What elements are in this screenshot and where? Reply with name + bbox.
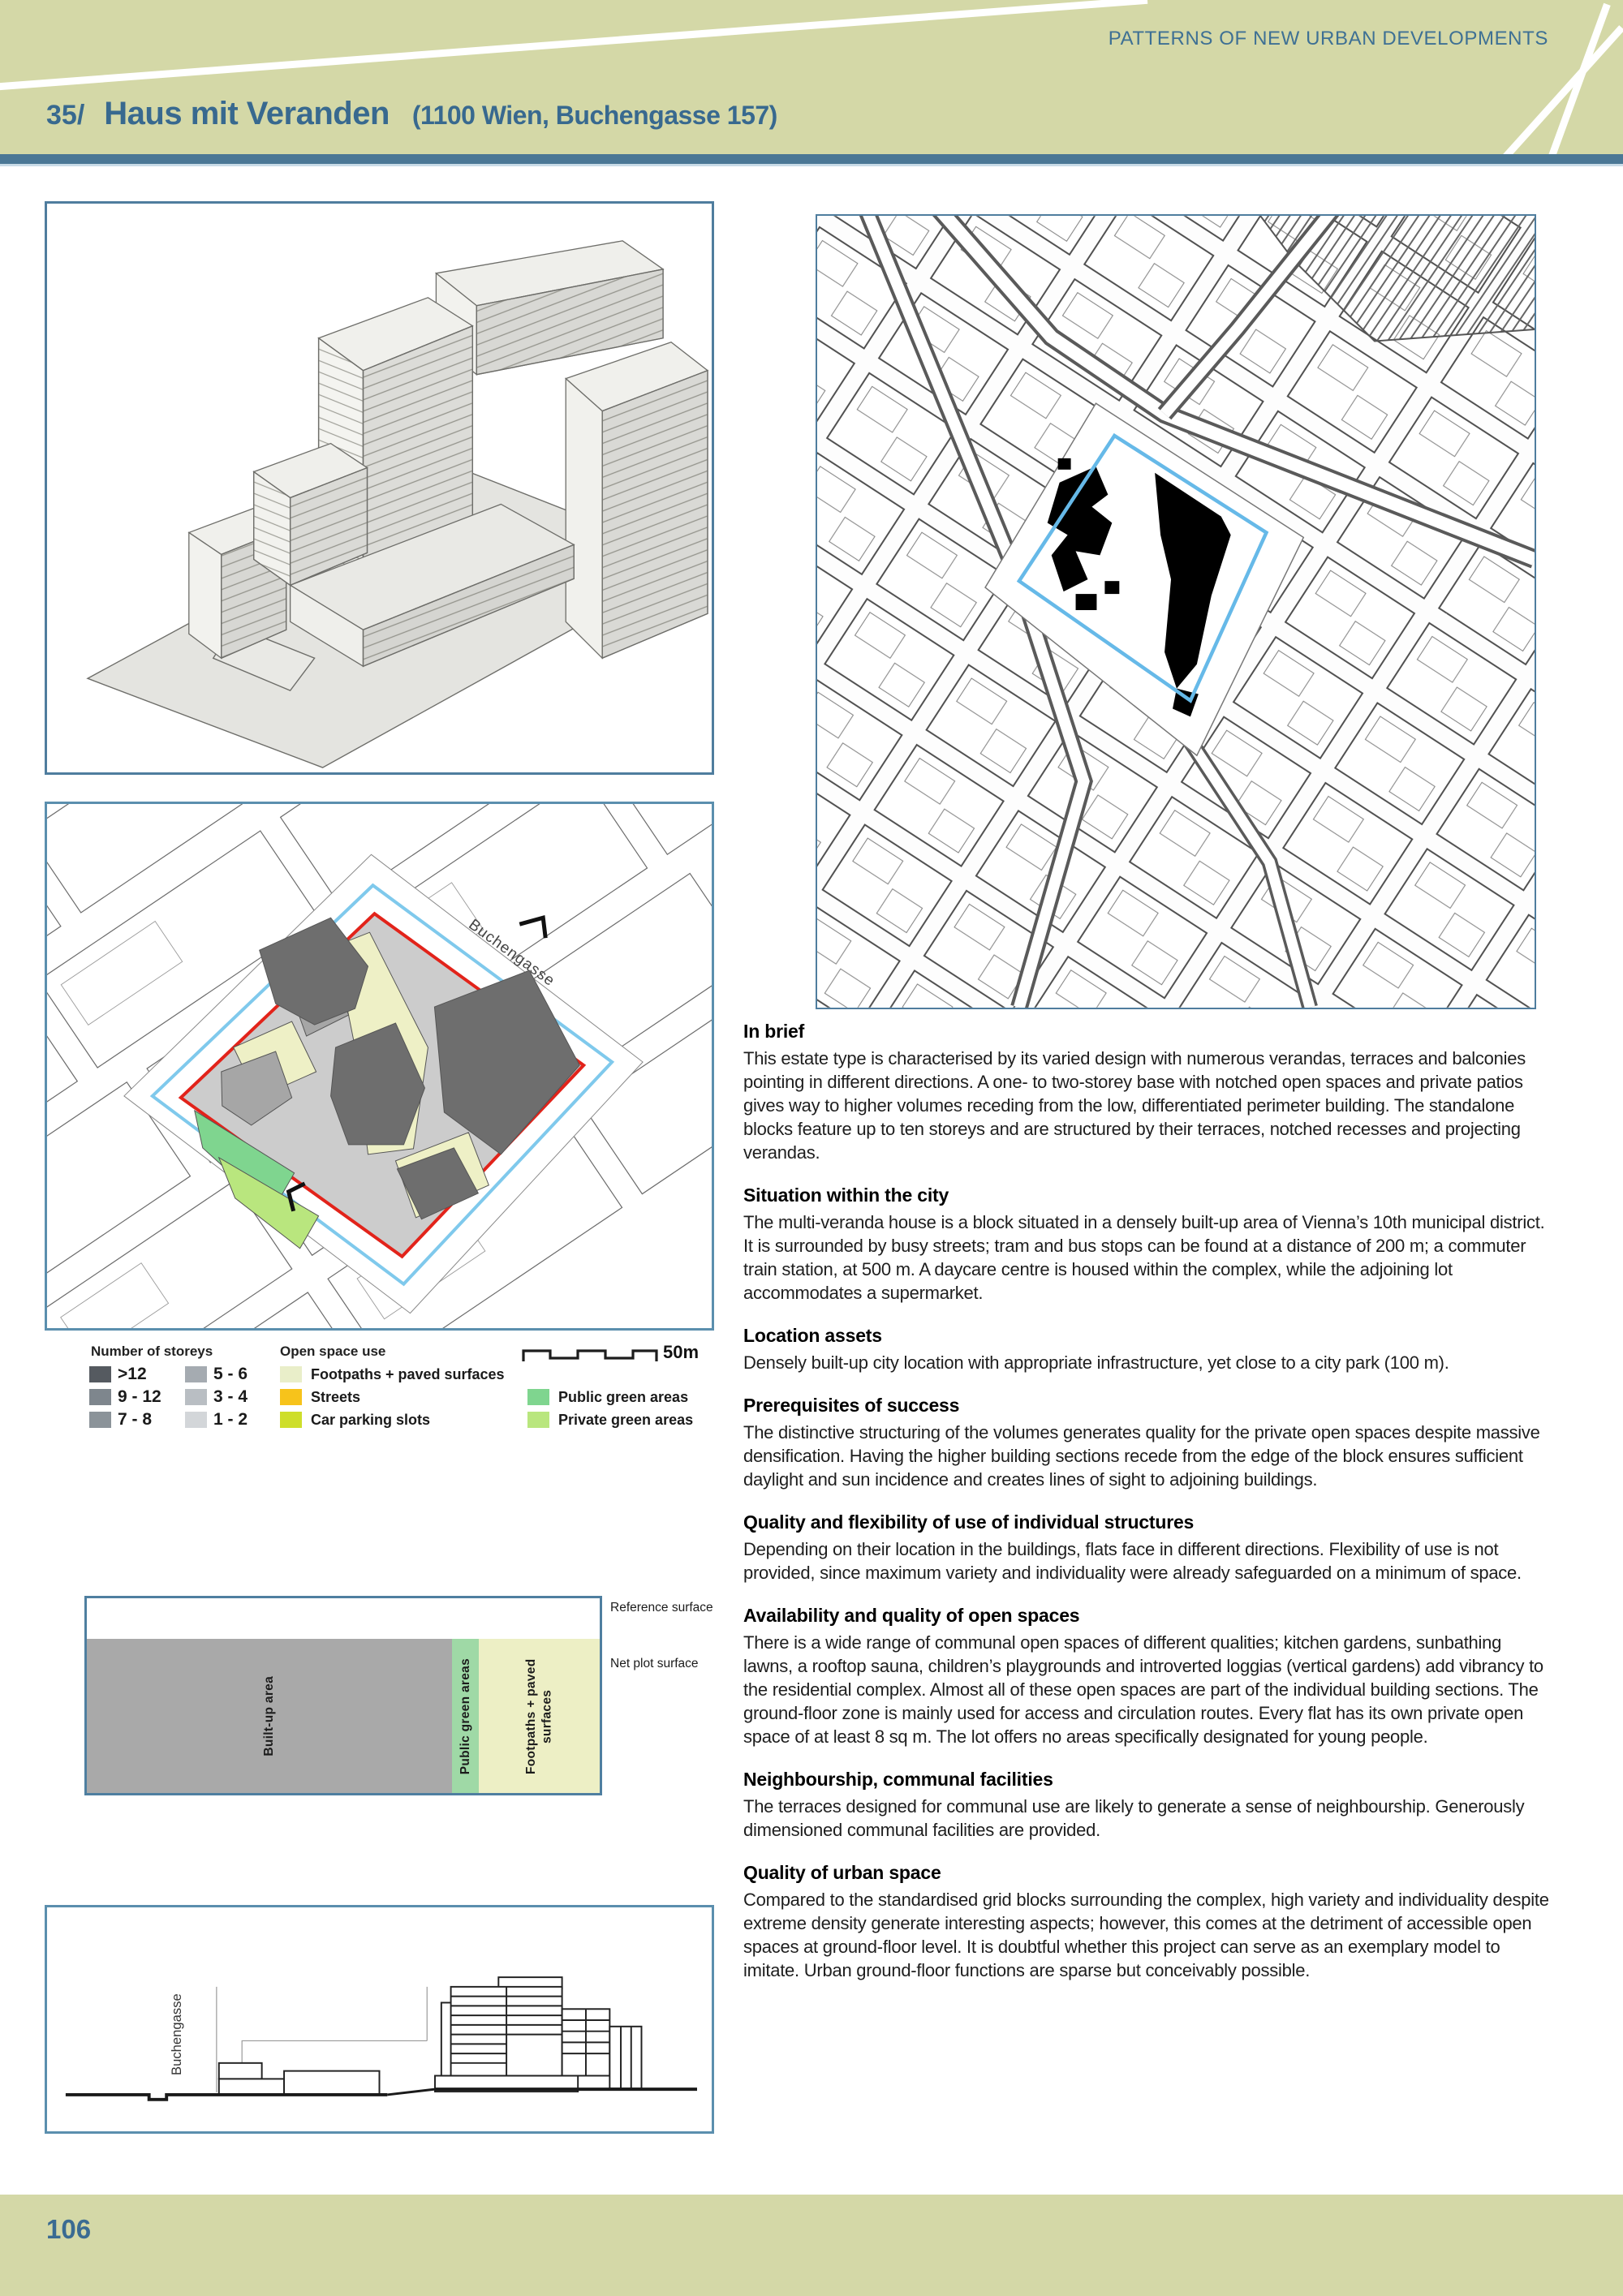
title-subtitle: (1100 Wien, Buchengasse 157) xyxy=(412,101,777,131)
section-body: The multi-veranda house is a block situa… xyxy=(743,1210,1553,1305)
legend-label: 9 - 12 xyxy=(118,1389,161,1405)
section-body: Depending on their location in the build… xyxy=(743,1537,1553,1584)
left-low-building xyxy=(219,2063,380,2095)
legend-label: Streets xyxy=(311,1389,360,1405)
section-body: There is a wide range of communal open s… xyxy=(743,1631,1553,1748)
book-page: PATTERNS OF NEW URBAN DEVELOPMENTS 35/ H… xyxy=(0,0,1623,2296)
item-number: 35/ xyxy=(46,100,84,131)
legend-swatch xyxy=(185,1412,207,1428)
legend-label: Private green areas xyxy=(558,1412,693,1428)
axonometric-figure xyxy=(45,201,714,775)
section: Situation within the city The multi-vera… xyxy=(743,1185,1553,1305)
net-plot-surface-row: Built-up area Public green areas Footpat… xyxy=(87,1639,600,1793)
section: Location assets Densely built-up city lo… xyxy=(743,1325,1553,1374)
article-text-column: In brief This estate type is characteris… xyxy=(743,1021,1553,2002)
section-body: This estate type is characterised by its… xyxy=(743,1047,1553,1164)
section: In brief This estate type is characteris… xyxy=(743,1021,1553,1164)
section: Quality and flexibility of use of indivi… xyxy=(743,1511,1553,1584)
chapter-eyebrow: PATTERNS OF NEW URBAN DEVELOPMENTS xyxy=(1109,28,1548,50)
chart-row-label: Reference surface xyxy=(610,1600,732,1615)
street-label: Buchengasse xyxy=(169,1993,184,2075)
segment-label: Built-up area xyxy=(261,1676,277,1756)
reference-surface-row xyxy=(87,1598,600,1639)
building-massing xyxy=(189,241,708,666)
legend-label: Public green areas xyxy=(558,1389,688,1405)
footer-band: 106 xyxy=(0,2195,1623,2296)
decorative-stripe-icon xyxy=(0,0,1147,91)
city-map-drawing xyxy=(817,216,1535,1008)
section: Availability and quality of open spaces … xyxy=(743,1605,1553,1748)
section-heading: In brief xyxy=(743,1021,1553,1043)
chart-segment-footpaths: Footpaths + paved surfaces xyxy=(479,1639,600,1793)
section-body: The distinctive structuring of the volum… xyxy=(743,1421,1553,1491)
legend-swatch xyxy=(89,1389,111,1405)
legend-label: 5 - 6 xyxy=(213,1366,248,1382)
surface-share-chart: Built-up area Public green areas Footpat… xyxy=(84,1596,602,1795)
header-rule xyxy=(0,154,1623,166)
page-number: 106 xyxy=(46,2214,91,2245)
site-plan-drawing: Buchengasse xyxy=(47,804,712,1328)
legend-label: 1 - 2 xyxy=(213,1412,248,1428)
section-body: Densely built-up city location with appr… xyxy=(743,1351,1553,1374)
section-heading: Availability and quality of open spaces xyxy=(743,1605,1553,1627)
legend-label: >12 xyxy=(118,1366,147,1382)
site-plan-figure: Buchengasse xyxy=(45,802,714,1331)
legend-swatch xyxy=(89,1412,111,1428)
legend-label: Car parking slots xyxy=(311,1412,430,1428)
section: Quality of urban space Compared to the s… xyxy=(743,1862,1553,1982)
section-heading: Prerequisites of success xyxy=(743,1395,1553,1417)
scale-label: 50m xyxy=(663,1342,699,1363)
axonometric-drawing xyxy=(47,204,712,772)
legend-label: Footpaths + paved surfaces xyxy=(311,1366,505,1382)
legend-swatch xyxy=(527,1389,549,1405)
legend-swatch xyxy=(527,1412,549,1428)
elevation-figure: Buchengasse xyxy=(45,1905,714,2134)
legend-swatch xyxy=(89,1366,111,1382)
ground-line xyxy=(66,2089,697,2100)
title-text: Haus mit Veranden xyxy=(104,96,390,132)
section-heading: Situation within the city xyxy=(743,1185,1553,1206)
city-map-figure xyxy=(816,214,1536,1009)
right-tall-building xyxy=(435,1977,641,2092)
section-heading: Quality and flexibility of use of indivi… xyxy=(743,1511,1553,1533)
legend-label: 7 - 8 xyxy=(118,1412,152,1428)
page-title: 35/ Haus mit Veranden (1100 Wien, Buchen… xyxy=(46,96,777,132)
map-legend: Number of storeys >12 9 - 12 7 - 8 5 - 6… xyxy=(45,1340,726,1455)
segment-label: Public green areas xyxy=(458,1658,473,1774)
legend-title: Number of storeys xyxy=(91,1344,213,1360)
section-heading: Location assets xyxy=(743,1325,1553,1347)
chart-row-label: Net plot surface xyxy=(610,1656,732,1671)
legend-swatch xyxy=(280,1412,302,1428)
section-body: Compared to the standardised grid blocks… xyxy=(743,1888,1553,1982)
chart-segment-built-up: Built-up area xyxy=(87,1639,452,1793)
scale-bar xyxy=(521,1345,659,1363)
section: Neighbourship, communal facilities The t… xyxy=(743,1769,1553,1842)
legend-title: Open space use xyxy=(280,1344,385,1360)
legend-swatch xyxy=(185,1366,207,1382)
section: Prerequisites of success The distinctive… xyxy=(743,1395,1553,1491)
chart-segment-public-green: Public green areas xyxy=(452,1639,479,1793)
elevation-drawing: Buchengasse xyxy=(47,1907,712,2131)
section-heading: Neighbourship, communal facilities xyxy=(743,1769,1553,1791)
legend-swatch xyxy=(185,1389,207,1405)
legend-swatch xyxy=(280,1366,302,1382)
section-body: The terraces designed for communal use a… xyxy=(743,1795,1553,1842)
legend-swatch xyxy=(280,1389,302,1405)
section-heading: Quality of urban space xyxy=(743,1862,1553,1884)
legend-label: 3 - 4 xyxy=(213,1389,248,1405)
segment-label: Footpaths + paved surfaces xyxy=(523,1645,555,1787)
header-band: PATTERNS OF NEW URBAN DEVELOPMENTS 35/ H… xyxy=(0,0,1623,154)
